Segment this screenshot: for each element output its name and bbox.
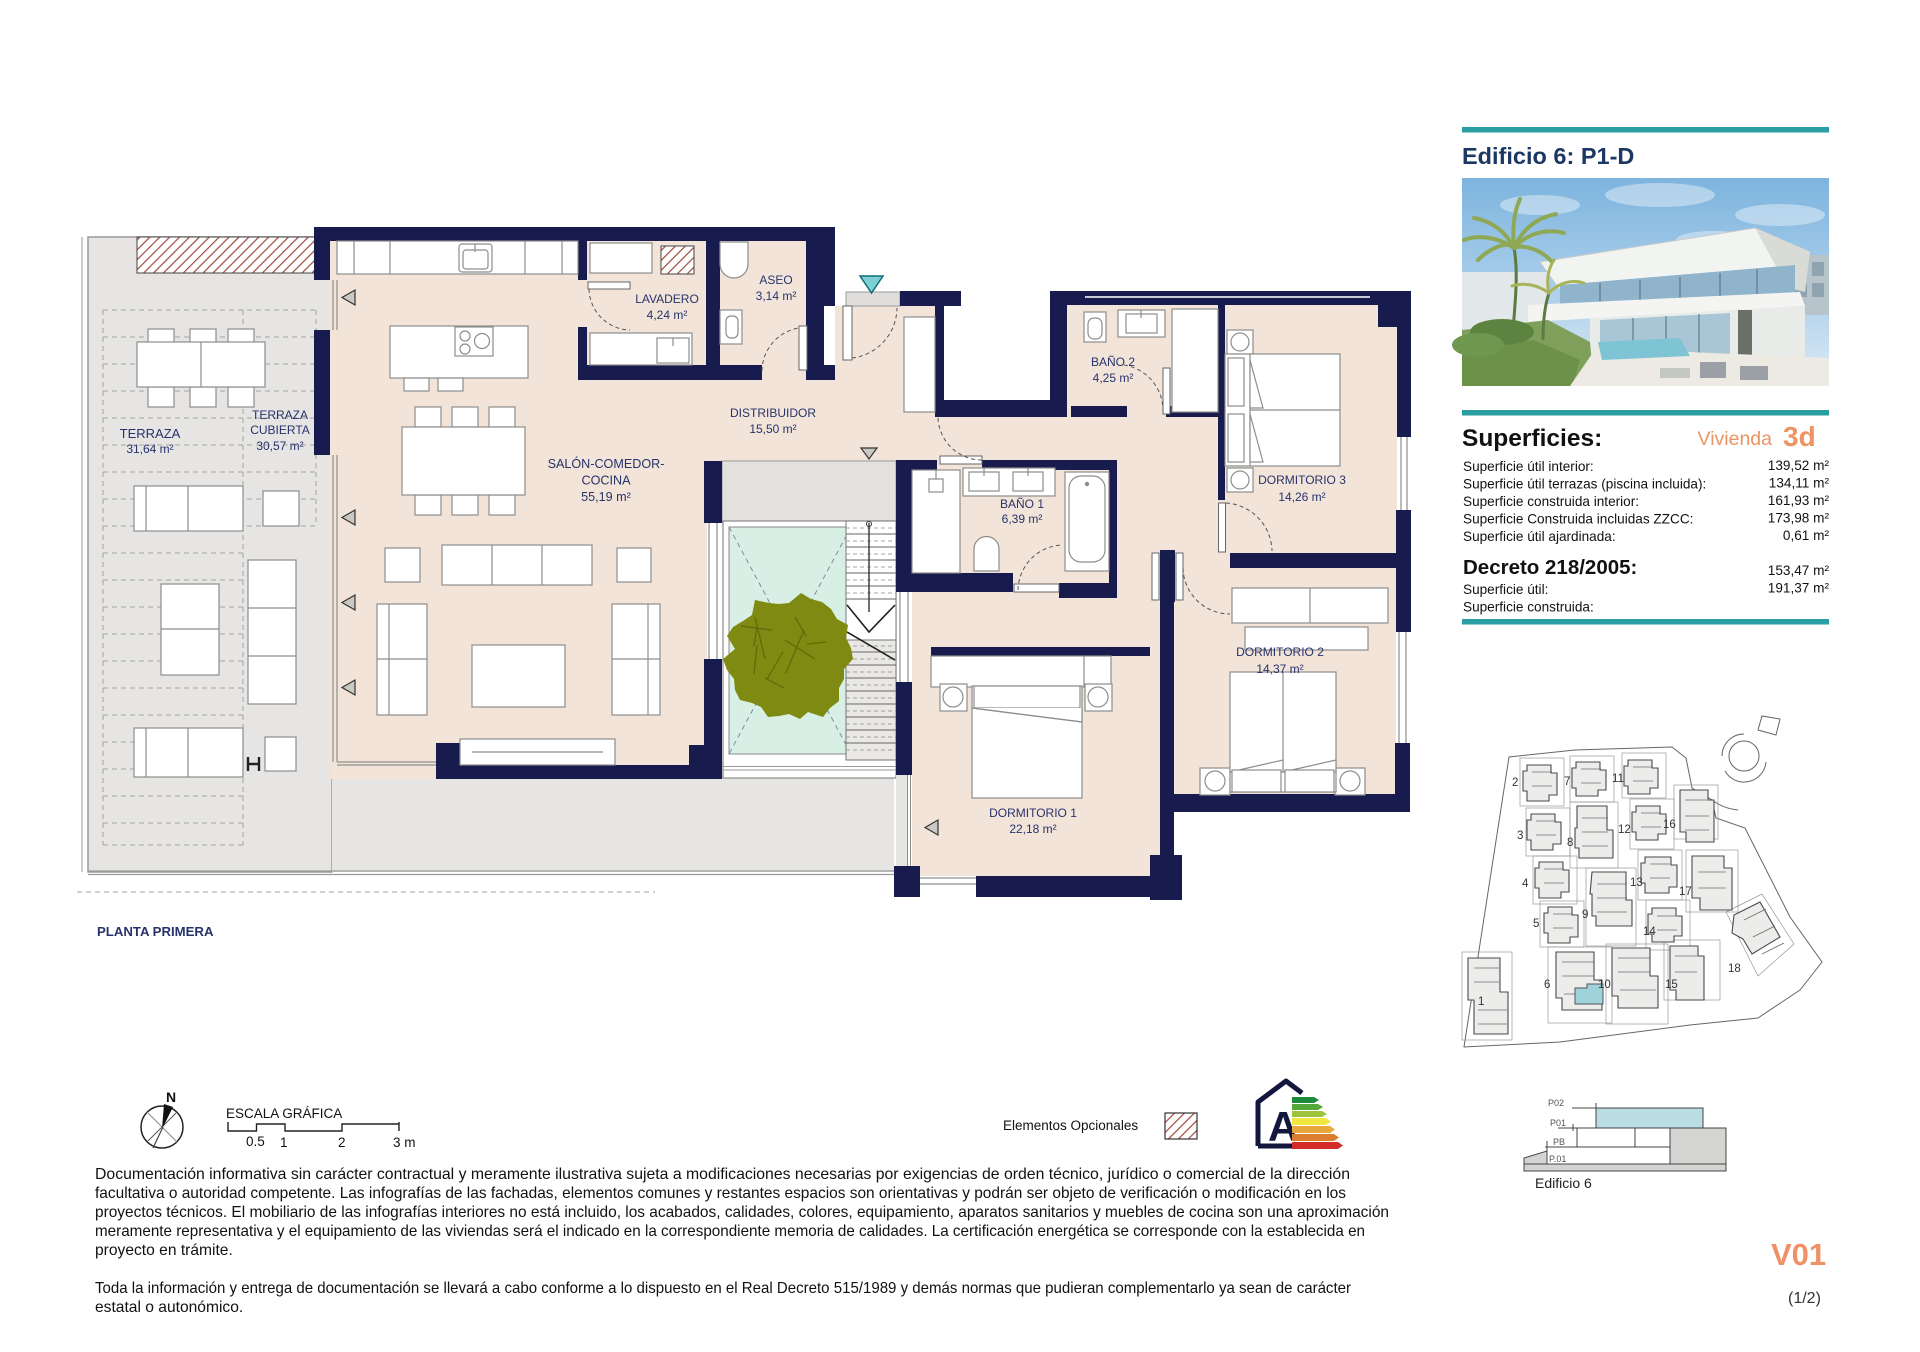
svg-text:COCINA: COCINA [582, 474, 632, 488]
svg-text:CUBIERTA: CUBIERTA [250, 423, 310, 437]
svg-text:ASEO: ASEO [759, 273, 792, 287]
svg-text:134,11 m²: 134,11 m² [1769, 476, 1830, 491]
svg-text:Superficie construida interior: Superficie construida interior: [1463, 494, 1639, 509]
svg-text:6: 6 [1544, 979, 1550, 991]
svg-text:16: 16 [1663, 819, 1676, 831]
svg-text:7: 7 [1564, 776, 1570, 788]
svg-text:153,47 m²: 153,47 m² [1768, 563, 1830, 578]
svg-text:14,37 m²: 14,37 m² [1256, 662, 1303, 676]
svg-text:P.01: P.01 [1549, 1154, 1566, 1164]
svg-text:Elementos Opcionales: Elementos Opcionales [1003, 1118, 1138, 1133]
svg-text:LAVADERO: LAVADERO [635, 292, 699, 306]
svg-text:30,57 m²: 30,57 m² [256, 439, 303, 453]
svg-text:BAÑO 1: BAÑO 1 [1000, 497, 1044, 511]
svg-text:9: 9 [1582, 909, 1588, 921]
svg-text:3 m: 3 m [393, 1135, 416, 1150]
svg-text:11: 11 [1612, 773, 1624, 785]
svg-text:Toda la información y entrega: Toda la información y entrega de documen… [95, 1280, 1351, 1297]
svg-text:Superficie útil ajardinada:: Superficie útil ajardinada: [1463, 529, 1616, 544]
svg-text:Superficie Construida incluida: Superficie Construida incluidas ZZCC: [1463, 512, 1693, 527]
svg-text:ESCALA GRÁFICA: ESCALA GRÁFICA [226, 1106, 342, 1121]
svg-text:22,18 m²: 22,18 m² [1009, 822, 1056, 836]
svg-text:TERRAZA: TERRAZA [252, 408, 308, 422]
svg-text:meramente representativa y el: meramente representativa y el equipamien… [95, 1223, 1365, 1240]
svg-text:15,50 m²: 15,50 m² [749, 422, 796, 436]
svg-text:14: 14 [1643, 926, 1656, 938]
svg-text:4,24 m²: 4,24 m² [647, 308, 688, 322]
svg-text:facultativa o autoridad compet: facultativa o autoridad competente. Las … [95, 1185, 1346, 1202]
svg-text:161,93 m²: 161,93 m² [1768, 493, 1830, 508]
svg-text:18: 18 [1728, 963, 1741, 975]
svg-text:Documentación informativa sin: Documentación informativa sin carácter c… [95, 1166, 1350, 1183]
svg-text:3,14 m²: 3,14 m² [756, 289, 797, 303]
svg-text:55,19 m²: 55,19 m² [581, 490, 631, 504]
svg-text:P02: P02 [1548, 1098, 1564, 1108]
svg-text:(1/2): (1/2) [1788, 1290, 1821, 1307]
svg-text:12: 12 [1618, 824, 1631, 836]
svg-text:DORMITORIO 1: DORMITORIO 1 [989, 806, 1077, 820]
svg-text:10: 10 [1598, 979, 1611, 991]
svg-text:0.5: 0.5 [246, 1134, 265, 1149]
svg-text:5: 5 [1533, 918, 1539, 930]
svg-text:191,37 m²: 191,37 m² [1768, 581, 1830, 596]
svg-text:proyectos técnicos. El mobilia: proyectos técnicos. El mobiliario de las… [95, 1204, 1389, 1221]
svg-text:8: 8 [1567, 837, 1573, 849]
svg-text:14,26 m²: 14,26 m² [1278, 490, 1325, 504]
svg-text:DORMITORIO 3: DORMITORIO 3 [1258, 473, 1346, 487]
svg-text:3: 3 [1517, 830, 1523, 842]
svg-text:1: 1 [280, 1135, 288, 1150]
svg-text:Superficie útil interior:: Superficie útil interior: [1463, 459, 1594, 474]
svg-text:PB: PB [1553, 1137, 1565, 1147]
svg-text:TERRAZA: TERRAZA [120, 426, 181, 441]
svg-text:Superficie útil terrazas (pisc: Superficie útil terrazas (piscina inclui… [1463, 477, 1706, 492]
svg-text:estatal o autonómico.: estatal o autonómico. [95, 1299, 243, 1316]
svg-text:15: 15 [1665, 979, 1678, 991]
svg-text:31,64 m²: 31,64 m² [126, 442, 173, 456]
svg-text:N: N [166, 1089, 176, 1105]
svg-text:Vivienda: Vivienda [1698, 428, 1773, 450]
svg-text:PLANTA PRIMERA: PLANTA PRIMERA [97, 924, 214, 939]
svg-text:Decreto 218/2005:: Decreto 218/2005: [1463, 556, 1637, 579]
svg-text:Edificio 6: P1-D: Edificio 6: P1-D [1462, 143, 1634, 169]
svg-text:4: 4 [1522, 878, 1529, 890]
svg-text:P01: P01 [1550, 1118, 1566, 1128]
svg-text:SALÓN-COMEDOR-: SALÓN-COMEDOR- [548, 456, 665, 471]
svg-text:17: 17 [1679, 886, 1692, 898]
svg-text:proyecto en trámite.: proyecto en trámite. [95, 1242, 233, 1259]
svg-text:139,52 m²: 139,52 m² [1768, 458, 1830, 473]
svg-text:2: 2 [338, 1135, 346, 1150]
svg-text:6,39 m²: 6,39 m² [1002, 512, 1043, 526]
svg-text:173,98 m²: 173,98 m² [1768, 511, 1830, 526]
svg-text:Superficie útil:: Superficie útil: [1463, 582, 1548, 597]
svg-text:BAÑO 2: BAÑO 2 [1091, 355, 1135, 369]
svg-text:DISTRIBUIDOR: DISTRIBUIDOR [730, 406, 816, 420]
svg-text:Edificio 6: Edificio 6 [1535, 1175, 1592, 1191]
svg-text:Superficie construida:: Superficie construida: [1463, 600, 1594, 615]
svg-text:0,61 m²: 0,61 m² [1783, 528, 1830, 543]
svg-text:DORMITORIO 2: DORMITORIO 2 [1236, 645, 1324, 659]
svg-text:4,25 m²: 4,25 m² [1093, 371, 1134, 385]
svg-text:V01: V01 [1771, 1237, 1826, 1272]
svg-text:Superficies:: Superficies: [1462, 425, 1602, 452]
svg-text:1: 1 [1478, 996, 1484, 1008]
svg-text:13: 13 [1630, 877, 1643, 889]
svg-text:2: 2 [1512, 777, 1518, 789]
svg-text:3d: 3d [1783, 421, 1816, 452]
